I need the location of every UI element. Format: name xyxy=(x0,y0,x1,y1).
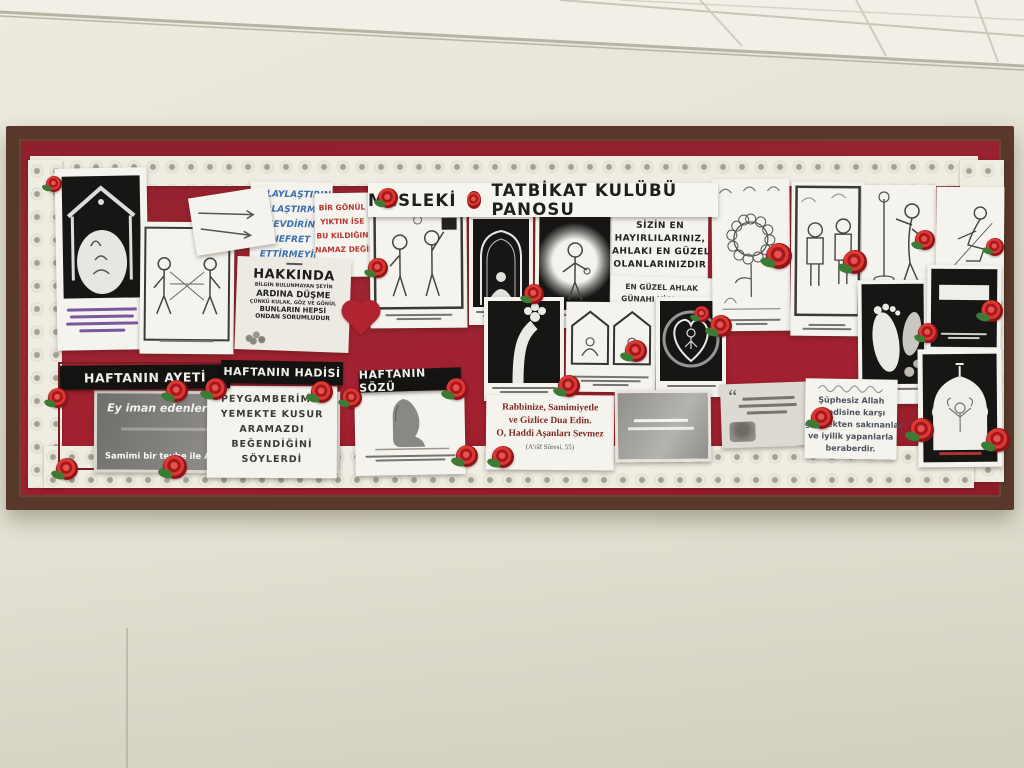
rose-icon xyxy=(918,323,938,343)
note-line: OLANLARINIZDIR xyxy=(612,259,708,273)
hadis-line: BEĞENDİĞİNİ xyxy=(207,437,337,453)
board-collage: MESLEKİ TATBİKAT KULÜBÜ PANOSU xyxy=(0,0,1024,768)
white-text-line xyxy=(634,419,688,422)
mosque-figure-drawing xyxy=(62,175,142,298)
peacock-art xyxy=(488,301,560,383)
rose-icon xyxy=(710,315,732,337)
classroom-photo: MESLEKİ TATBİKAT KULÜBÜ PANOSU xyxy=(0,0,1024,768)
text-line xyxy=(742,396,794,400)
rose-icon xyxy=(467,191,482,209)
rose-icon xyxy=(524,284,544,304)
cartoon-peacock-card xyxy=(484,297,564,401)
rose-icon xyxy=(205,378,227,400)
praying-figure-drawing xyxy=(473,219,529,307)
rose-icon xyxy=(558,375,580,397)
white-banner-strip xyxy=(939,285,989,300)
rose-icon xyxy=(378,188,398,208)
heart-cutout xyxy=(336,295,386,339)
soz-card xyxy=(354,390,465,476)
note-line: BİR GÖNÜL xyxy=(314,201,369,216)
hakkinda-verse-card: HAKKINDA BİLGİN BULUNMAYAN ŞEYİN ARDINA … xyxy=(234,256,351,353)
pen-sketch-note xyxy=(188,186,276,256)
white-text-line xyxy=(628,427,694,431)
rose-icon xyxy=(766,243,792,269)
caption-lines xyxy=(355,452,465,464)
rose-icon xyxy=(368,258,388,278)
mosque-drawing-art xyxy=(62,175,142,298)
rose-icon xyxy=(843,250,867,274)
arabic-script-line xyxy=(816,382,886,393)
cloud-photo-card xyxy=(615,390,712,463)
rose-icon xyxy=(46,176,62,192)
mosque-drawing-card xyxy=(54,167,149,351)
quote-mark: “ xyxy=(728,386,738,409)
divider-mark xyxy=(286,263,302,266)
quote-flower-card: “ xyxy=(720,382,808,449)
flower-photo xyxy=(729,421,756,442)
rose-icon xyxy=(166,380,188,402)
rose-icon xyxy=(456,445,478,467)
rose-icon xyxy=(986,428,1010,452)
arch-prayer-art xyxy=(473,219,529,307)
rose-icon xyxy=(492,446,514,468)
note-line: AHLAKI EN GÜZEL xyxy=(612,246,708,260)
rose-icon xyxy=(986,238,1004,256)
caption-lines xyxy=(935,331,993,342)
rose-icon xyxy=(981,300,1003,322)
purple-handwriting-scribble xyxy=(65,303,140,336)
rose-icon xyxy=(811,407,833,429)
card-line: ve iyilik yapanlarla xyxy=(805,430,897,444)
dua-line: ve Gizlice Dua Edin. xyxy=(486,414,614,428)
section-header-label: HAFTANIN AYETİ xyxy=(84,369,206,385)
caption-lines xyxy=(790,322,863,333)
text-line xyxy=(739,403,797,408)
rose-icon xyxy=(694,306,710,322)
caption-lines xyxy=(656,383,726,389)
rose-icon xyxy=(915,230,935,250)
note-line: NAMAZ DEĞİL xyxy=(315,243,370,258)
note-line: SİZİN EN xyxy=(612,220,708,234)
rose-icon xyxy=(56,458,78,480)
rose-icon xyxy=(910,418,934,442)
board-title-right: TATBİKAT KULÜBÜ PANOSU xyxy=(491,181,718,219)
sizin-note: SİZİN EN HAYIRLILARINIZ, AHLAKI EN GÜZEL… xyxy=(612,215,709,283)
text-line xyxy=(747,410,787,414)
section-header-label: HAFTANIN HADİSİ xyxy=(223,365,340,380)
note-line: HAYIRLILARINIZ, xyxy=(612,233,708,247)
hadis-line: ARAMAZDI xyxy=(207,422,337,438)
rose-icon xyxy=(311,381,333,403)
arrow-sketch xyxy=(188,186,276,256)
twin-prayer-drawing xyxy=(566,302,657,373)
peacock-flower-drawing xyxy=(488,301,560,383)
rose-icon xyxy=(163,455,187,479)
hadis-line: SÖYLERDİ xyxy=(207,452,337,468)
note-line: YIKTIN İSE xyxy=(315,215,370,230)
rose-icon xyxy=(342,388,362,408)
board-title-banner: MESLEKİ TATBİKAT KULÜBÜ PANOSU xyxy=(368,183,718,217)
note-line: BU KILDIĞIN xyxy=(315,229,370,244)
dua-line: O, Haddi Aşanları Sevmez xyxy=(486,427,614,441)
rose-icon xyxy=(446,378,468,400)
ayet-line1: Ey iman edenler! xyxy=(107,401,212,415)
hadis-line: YEMEKTE KUSUR xyxy=(207,407,337,423)
rose-icon xyxy=(48,388,68,408)
flower-print xyxy=(241,327,270,346)
dua-line: Rabbinize, Samimiyetle xyxy=(486,401,614,415)
card-line: beraberdir. xyxy=(804,442,896,456)
rose-icon xyxy=(625,340,647,362)
